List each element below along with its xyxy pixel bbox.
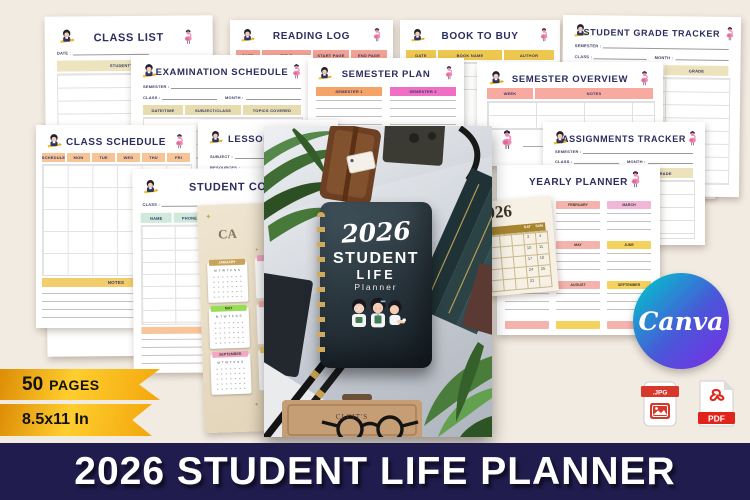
mini-calendar-card: SEPTEMBER M T W T F S S — [210, 354, 251, 395]
mini-dates — [211, 274, 244, 299]
writing-lines — [390, 100, 456, 126]
subject-label: SUBJECT : — [210, 154, 233, 159]
mini-calendar-card: MAY M T W T F S S — [209, 308, 250, 349]
page-title: SEMESTER OVERVIEW — [477, 74, 663, 85]
month-header: MARCH — [607, 201, 651, 209]
notebook-cover: 2026 STUDENT LIFE Planner — [320, 202, 432, 368]
students-illustration — [346, 298, 408, 332]
column-header: SCHEDULE — [42, 153, 65, 162]
calendar-date: 4 — [534, 232, 546, 238]
column-header: WED — [117, 153, 140, 162]
canva-logo: Canva — [633, 273, 729, 369]
pages-count-badge: 50 PAGES — [0, 369, 160, 400]
mini-weekdays: M T W T F S S — [210, 268, 244, 273]
month-label: MONTH : — [627, 159, 646, 164]
column-header: DATE/TIME — [143, 105, 183, 115]
semester-label: SEMESTER : — [555, 149, 581, 154]
svg-text:PDF: PDF — [708, 413, 725, 423]
calendar-date: 24 — [525, 266, 537, 272]
calendar-date: 25 — [537, 265, 549, 271]
class-label: CLASS : — [143, 95, 160, 100]
calendar-date: 11 — [535, 243, 547, 249]
page-title: BOOK TO BUY — [400, 31, 560, 42]
month-header: JUNE — [607, 241, 651, 249]
month-header — [556, 321, 600, 329]
page-title: EXAMINATION SCHEDULE — [131, 67, 313, 78]
calendar-date: 3 — [522, 233, 534, 239]
column-header: AUTHOR — [504, 50, 554, 60]
mini-month-header: JANUARY — [209, 259, 245, 266]
pdf-file-icon: PDF — [698, 380, 735, 428]
month-header: SEPTEMBER — [607, 281, 651, 289]
month-label: MONTH : — [655, 55, 674, 60]
column-header: WEEK — [487, 88, 533, 99]
page-title: CLASS SCHEDULE — [36, 137, 196, 148]
mini-month-header: SEPTEMBER — [212, 351, 248, 358]
semester-label: SEMESTER : — [143, 84, 169, 89]
cover-title: STUDENT — [320, 250, 432, 268]
dark-notebook — [264, 272, 313, 377]
mini-dates — [215, 366, 248, 391]
column-header: NAME — [141, 213, 172, 223]
month-label: MONTH : — [225, 95, 244, 100]
semester-label: SEMESTER : — [575, 43, 602, 48]
mini-month-header: MAY — [211, 305, 247, 312]
class-label: CLASS : — [555, 159, 572, 164]
pages-count-word: PAGES — [49, 377, 99, 393]
calendar-date: 18 — [536, 254, 548, 260]
calendar-date: 31 — [526, 277, 538, 283]
column-header: SEMESTER 2 — [390, 87, 456, 96]
column-header: NOTES — [535, 88, 653, 99]
class-label: CLASS : — [575, 54, 592, 59]
page-title: SEMESTER PLAN — [308, 69, 464, 80]
date-label: DATE : — [57, 51, 71, 56]
page-title: STUDENT GRADE TRACKER — [563, 27, 741, 39]
page-title: READING LOG — [230, 31, 393, 42]
column-header: MON — [67, 153, 90, 162]
title-banner: 2026 STUDENT LIFE PLANNER — [0, 443, 750, 500]
page-size-text: 8.5x11 In — [22, 411, 89, 429]
column-header: SEMESTER 1 — [316, 87, 382, 96]
column-header: TOPICS COVERED — [243, 105, 301, 115]
mini-weekdays: M T W T F S S — [213, 360, 247, 365]
column-header: THU — [142, 153, 165, 162]
page-title: ASSIGNMENTS TRACKER — [543, 134, 705, 144]
page-title: CLASS LIST — [45, 31, 213, 44]
product-preview-image: CLASS LIST DATE : STUDENT'S NAME READING… — [0, 0, 750, 500]
mini-calendar-card: JANUARY M T W T F S S — [207, 262, 248, 303]
cover-subtitle: Planner — [320, 282, 432, 292]
jpg-file-icon: .JPG — [641, 381, 679, 428]
flamingo-icon — [627, 171, 644, 188]
cover-year: 2026 — [319, 215, 432, 250]
svg-text:.JPG: .JPG — [653, 389, 668, 396]
column-header: GRADE — [664, 65, 728, 76]
canva-logo-text: Canva — [639, 307, 724, 336]
student-icon — [208, 130, 223, 145]
pages-count-number: 50 — [22, 374, 43, 396]
calendar-date: 10 — [523, 244, 535, 250]
column-header: FRI — [167, 153, 190, 162]
planner-cover-photo: 2026 STUDENT LIFE Planner CLCIT'S — [264, 126, 492, 437]
cover-title-2: LIFE — [320, 268, 432, 282]
column-header: SUBJECT/CLASS — [185, 105, 241, 115]
flamingo-icon — [497, 130, 517, 150]
banner-title: 2026 STUDENT LIFE PLANNER — [74, 450, 675, 494]
calendar-watermark: CA — [218, 226, 237, 243]
plant-bottom-right — [424, 342, 492, 437]
page-semester-plan: SEMESTER PLAN SEMESTER 1 SEMESTER 2 — [308, 58, 464, 128]
page-size-badge: 8.5x11 In — [0, 404, 152, 436]
mini-dates — [213, 320, 246, 345]
month-header: AUGUST — [556, 281, 600, 289]
month-header — [505, 321, 549, 329]
column-header: TUE — [92, 153, 115, 162]
box-label: CLCIT'S — [294, 413, 410, 421]
month-header: MAY — [556, 241, 600, 249]
class-label: CLASS : — [143, 202, 160, 207]
mini-weekdays: M T W T F S S — [212, 314, 246, 319]
month-header: FEBRUARY — [556, 201, 600, 209]
calendar-date: 17 — [524, 255, 536, 261]
